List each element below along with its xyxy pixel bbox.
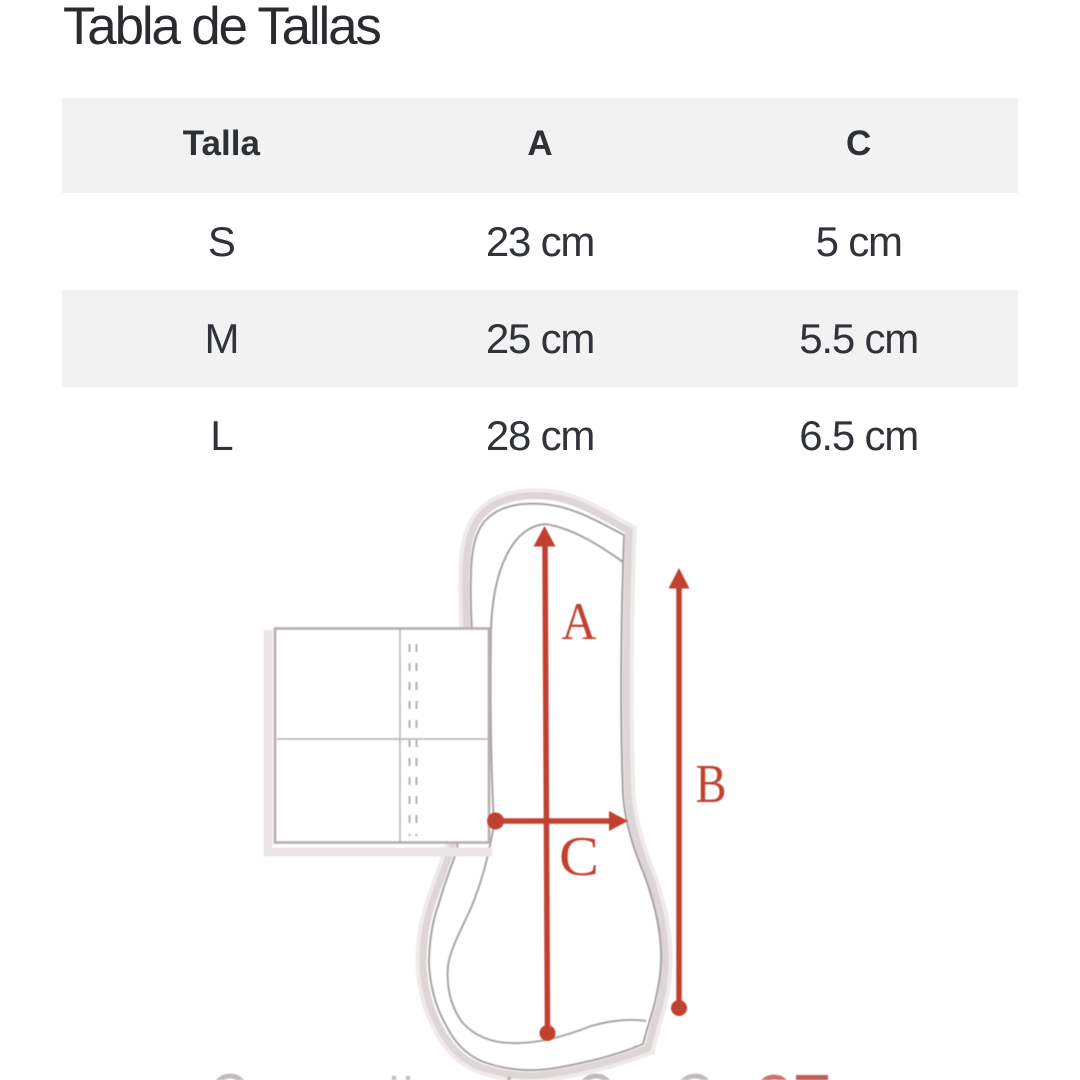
svg-text:C: C (559, 826, 599, 888)
svg-text:B: B (696, 753, 727, 814)
svg-text:A: A (562, 593, 597, 651)
